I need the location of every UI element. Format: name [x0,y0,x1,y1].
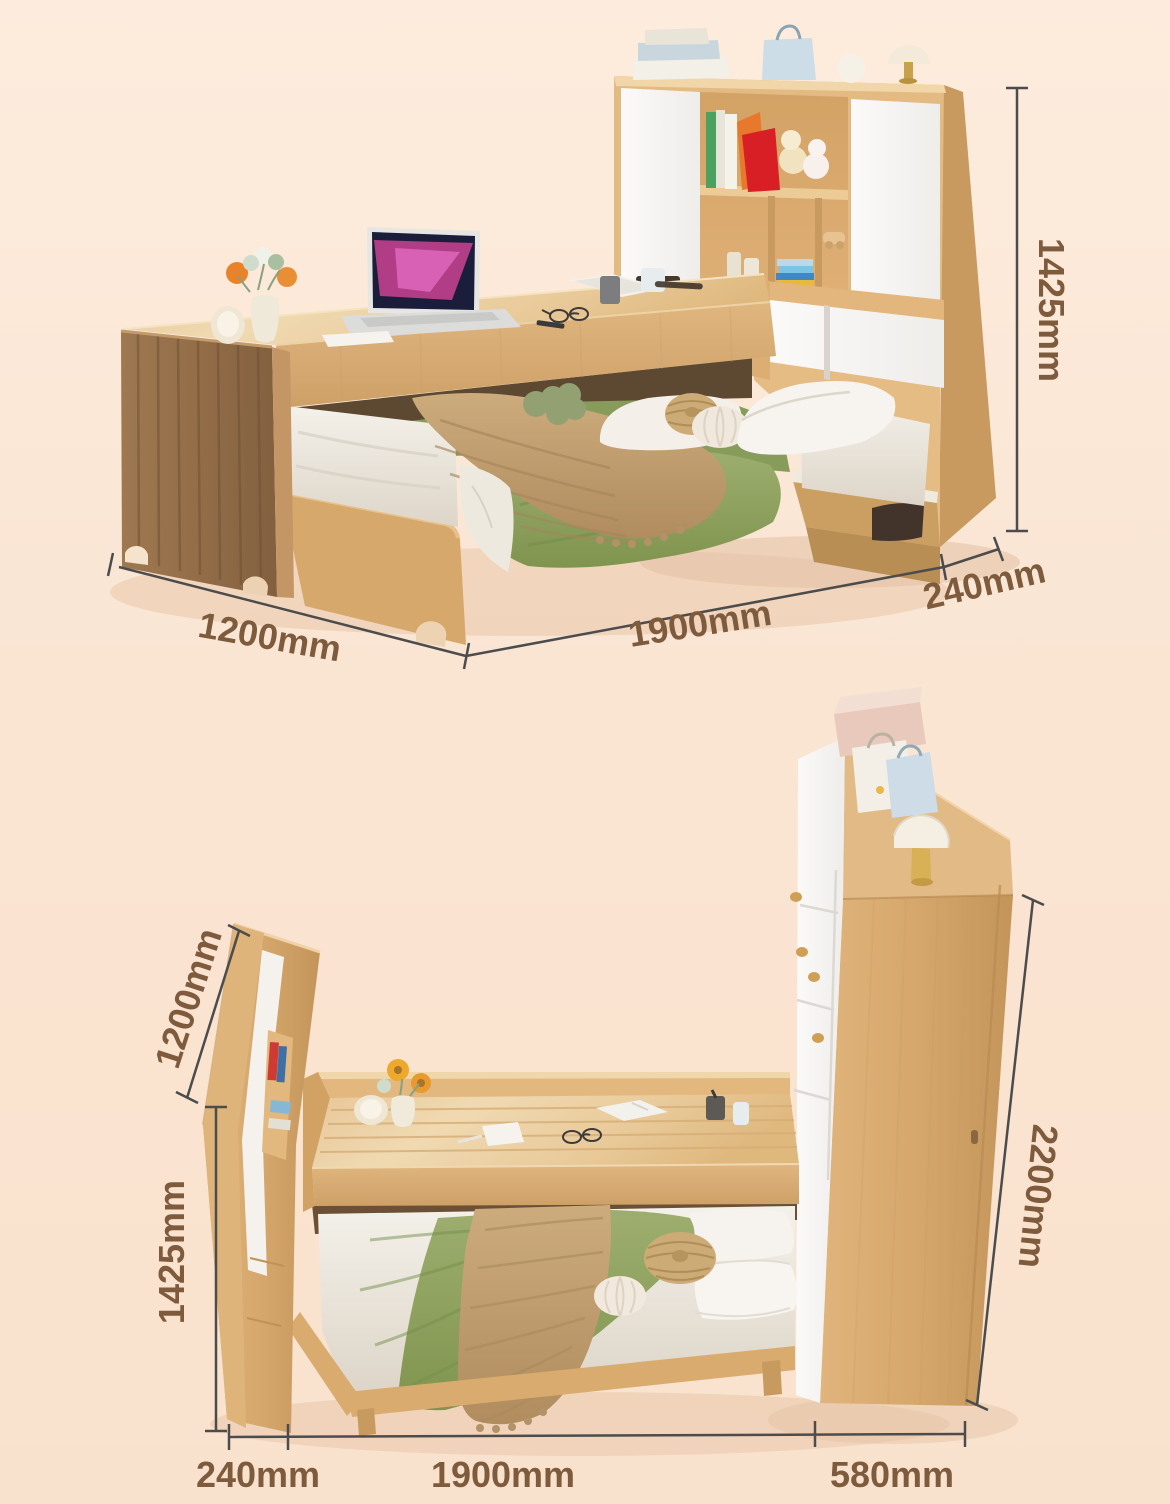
svg-text:240mm: 240mm [196,1454,320,1495]
svg-text:1425mm: 1425mm [1031,238,1072,382]
svg-text:1425mm: 1425mm [151,1180,192,1324]
svg-text:580mm: 580mm [830,1454,954,1495]
svg-text:1900mm: 1900mm [431,1454,575,1495]
